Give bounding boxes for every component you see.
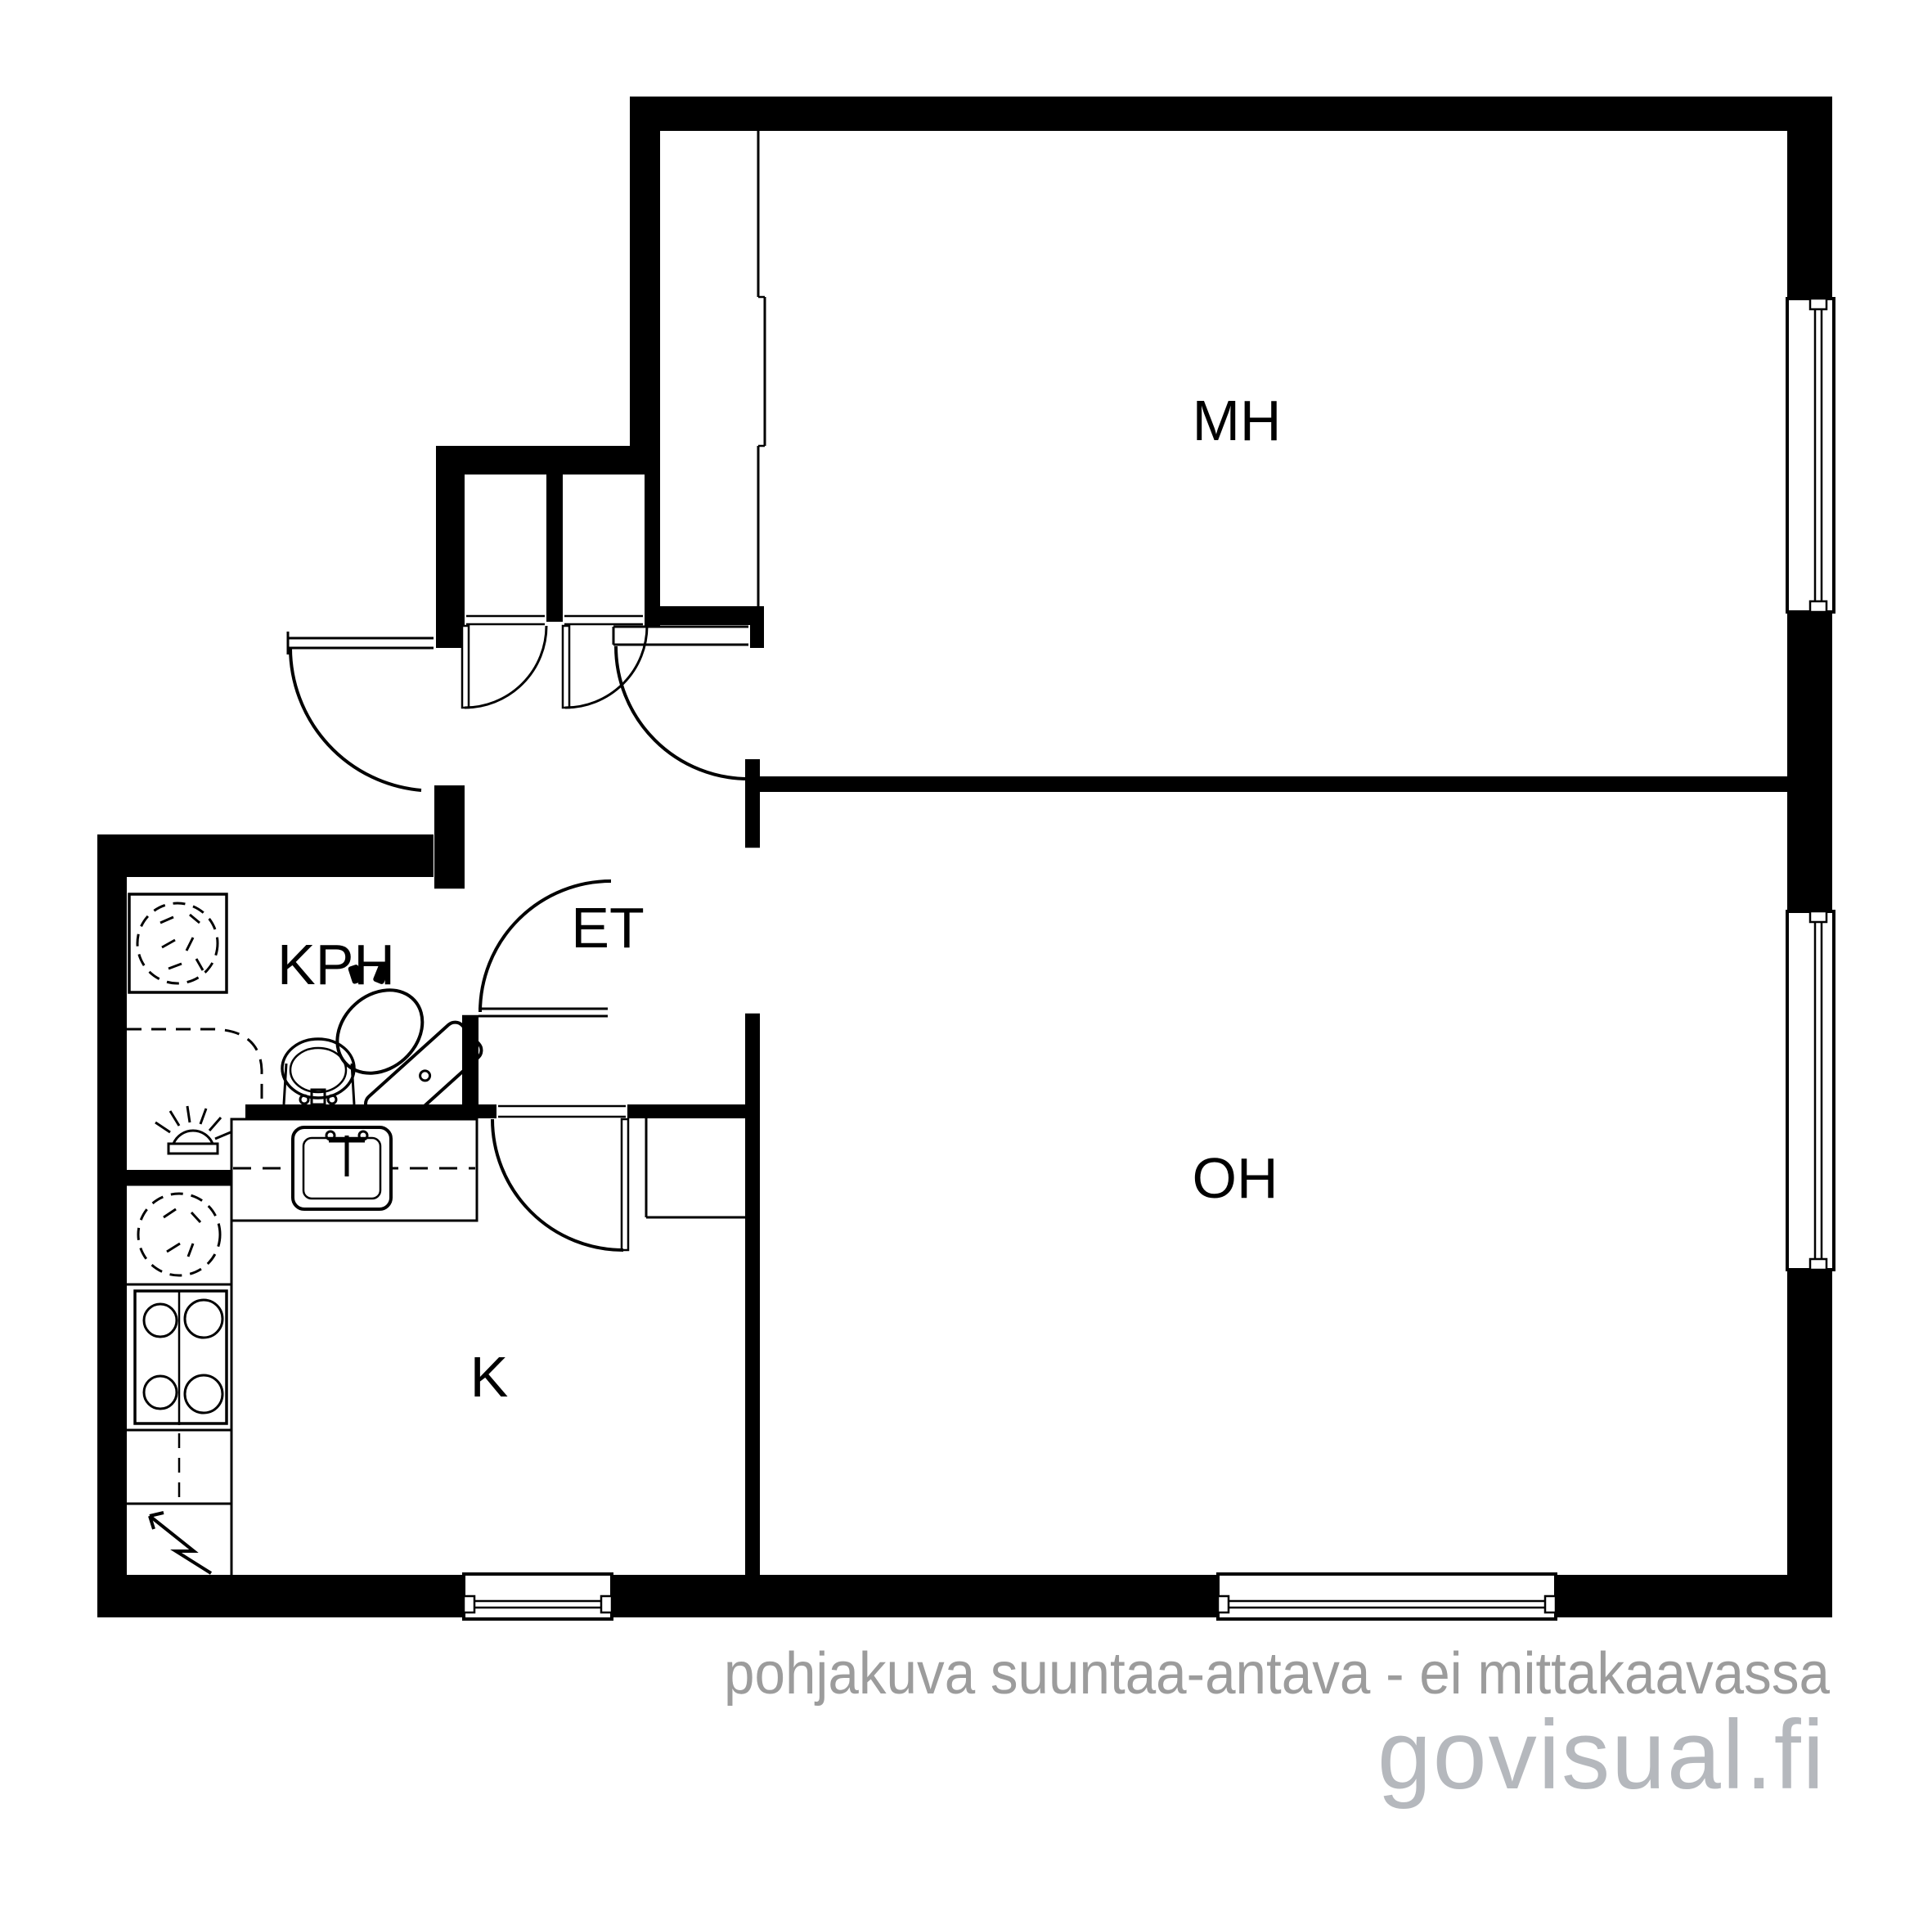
wall-hall-east-stub [745,759,760,847]
wall-bedroom-door-jamb [750,625,764,648]
window-bedroom-icon [1787,299,1834,612]
wall-bedroom-living-divider [760,776,1787,792]
floor-plan-drawing: MH OH ET KPH K pohjakuva suuntaa-antava … [0,0,1932,1907]
wall-bedroom-west-upper [630,97,660,475]
wall-bedroom-south [645,606,764,625]
wall-left-exterior [97,834,127,1617]
watermark-tagline: pohjakuva suuntaa-antava - ei mittakaava… [724,1641,1831,1707]
wall-kitchen-living-divider [745,1014,760,1575]
washing-machine-icon [129,894,227,992]
room-label-entry: ET [571,896,644,960]
kitchen-sink-icon [293,1127,391,1209]
room-label-kitchen: K [470,1345,509,1409]
floor-plan-page: MH OH ET KPH K pohjakuva suuntaa-antava … [0,0,1932,1907]
wall-bathroom-south [260,1104,496,1118]
wall-hall-northwest [436,446,465,648]
wall-bottom-exterior [97,1575,1832,1617]
wall-entry-bathroom-upper [434,785,465,888]
room-label-bedroom: MH [1193,389,1282,452]
window-kitchen-icon [464,1574,612,1619]
wall-bathroom-north [97,834,434,877]
wall-bedroom-west-lower [645,475,660,626]
room-label-bathroom: KPH [277,933,395,996]
room-label-living: OH [1193,1146,1278,1210]
window-living-east-icon [1787,911,1834,1270]
wall-closet-top [436,446,660,475]
wall-top-exterior [630,97,1832,131]
wall-pantry-north [627,1104,760,1118]
watermark-brand: govisual.fi [1377,1700,1826,1810]
wall-closet-divider [546,475,563,622]
window-living-south-icon [1218,1574,1556,1619]
